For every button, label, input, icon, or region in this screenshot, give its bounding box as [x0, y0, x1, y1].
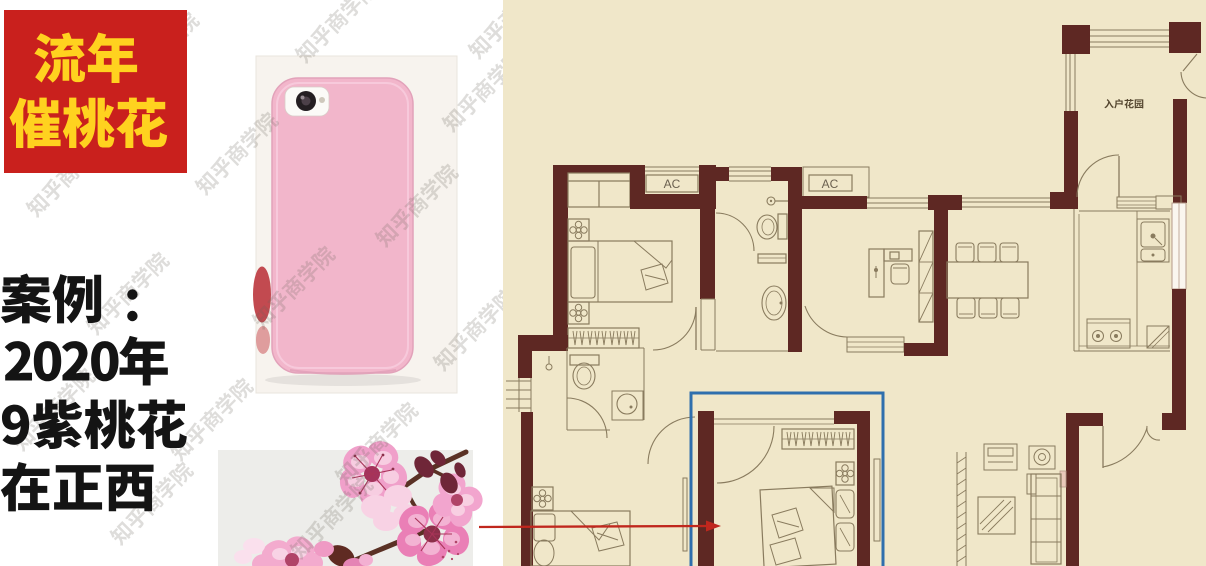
- svg-text:AC: AC: [664, 177, 681, 191]
- svg-text:AC: AC: [822, 177, 839, 191]
